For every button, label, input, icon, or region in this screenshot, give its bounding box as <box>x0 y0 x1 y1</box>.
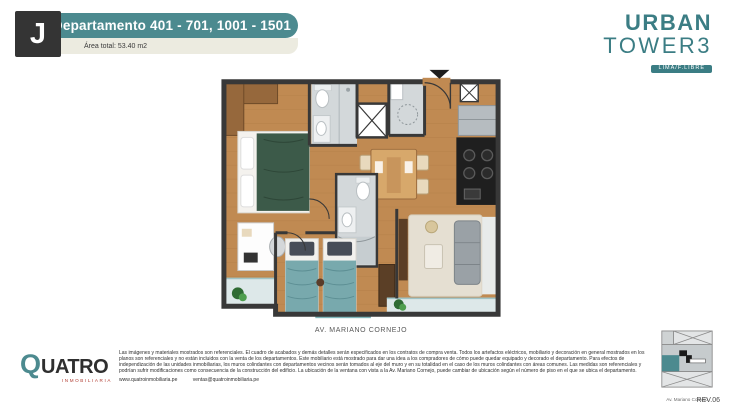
key-plan: Av. Mariano Cornejo <box>657 330 717 402</box>
street-label: AV. MARIANO CORNEJO <box>212 327 510 334</box>
unit-letter-badge: J <box>15 11 61 57</box>
toilet <box>316 90 329 108</box>
pillow <box>327 242 352 256</box>
apartment-title-banner: Departamento 401 - 701, 1001 - 1501 <box>20 13 298 38</box>
website-link[interactable]: www.quatroinmobiliaria.pe <box>119 377 177 383</box>
curtain <box>482 217 496 294</box>
revision-label: REV.06 <box>697 397 720 404</box>
balcony-left <box>226 278 276 306</box>
unit-letter: J <box>30 18 46 51</box>
fridge <box>458 106 498 136</box>
teal-duvet <box>323 261 356 313</box>
chair <box>416 155 429 170</box>
kitchen-sink <box>464 189 480 199</box>
wardrobe-side <box>226 84 244 136</box>
email-link[interactable]: ventas@quatroinmobiliaria.pe <box>193 377 259 383</box>
urban-tower-logo: URBAN TOWER3 LIMA/F.LIBRE <box>603 12 712 73</box>
highlighted-unit <box>662 355 679 371</box>
entrance-marker-icon <box>430 70 450 79</box>
stool <box>316 278 324 286</box>
floor-plan-drawing <box>212 69 510 323</box>
bathroom-1 <box>311 82 357 146</box>
desk-chair <box>270 237 286 257</box>
tv-console <box>399 219 408 281</box>
area-banner: Área total: 53.40 m2 <box>20 38 298 54</box>
floor-plan <box>212 69 510 323</box>
toilet <box>357 182 370 200</box>
balcony-right <box>387 298 496 312</box>
disclaimer-text: Las imágenes y materiales mostrados son … <box>119 351 648 375</box>
sink <box>391 84 403 100</box>
apartment-title: Departamento 401 - 701, 1001 - 1501 <box>27 18 291 33</box>
quatro-subtitle: INMOBILIARIA <box>20 379 112 384</box>
quatro-rest: UATRO <box>41 357 108 378</box>
quatro-q: Q <box>20 351 41 378</box>
logo-line-urban: URBAN <box>603 12 712 34</box>
elevator-shaft <box>357 104 387 138</box>
teal-duvet <box>286 261 319 313</box>
coffee-table <box>425 245 443 269</box>
pillow <box>289 242 314 256</box>
living-room <box>399 215 496 296</box>
quatro-logo: Q UATRO INMOBILIARIA <box>20 351 112 384</box>
brochure-page: Departamento 401 - 701, 1001 - 1501 Área… <box>0 0 730 411</box>
shower-head <box>346 88 350 92</box>
chair <box>416 179 429 194</box>
key-plan-map <box>658 330 716 390</box>
pouf <box>426 221 438 233</box>
bathroom-entry <box>389 82 425 136</box>
logo-badge-lima: LIMA/F.LIBRE <box>651 65 712 74</box>
logo-line-tower3: TOWER3 <box>603 35 712 57</box>
laptop <box>244 253 258 263</box>
legal-block: Las imágenes y materiales mostrados son … <box>119 351 648 383</box>
pillow <box>241 175 254 207</box>
sofa <box>454 221 480 285</box>
pillow <box>241 137 254 169</box>
